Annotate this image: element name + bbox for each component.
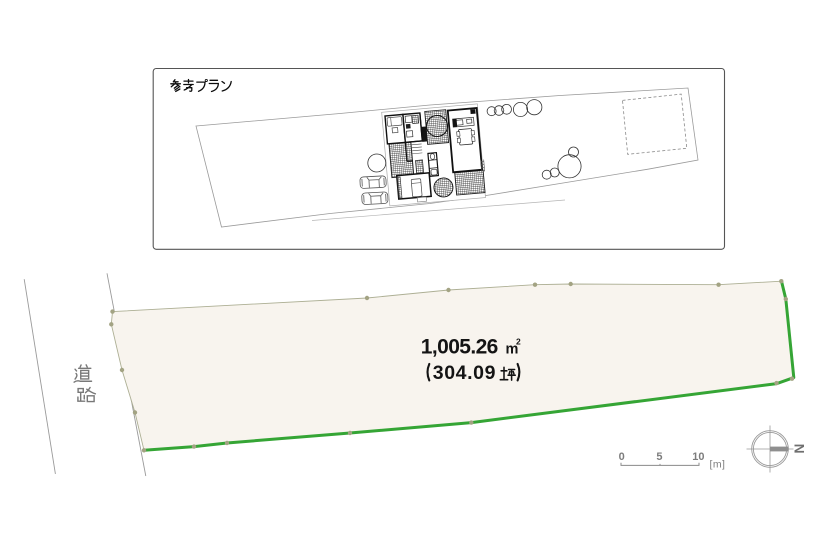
svg-text:304.09: 304.09 (433, 362, 496, 384)
svg-text:2: 2 (516, 337, 521, 347)
svg-text:[m]: [m] (710, 459, 726, 471)
svg-text:10: 10 (692, 451, 704, 463)
svg-text:5: 5 (656, 451, 662, 463)
svg-text:0: 0 (619, 451, 625, 463)
svg-text:N: N (792, 444, 807, 454)
svg-text:1,005.26: 1,005.26 (421, 335, 498, 358)
